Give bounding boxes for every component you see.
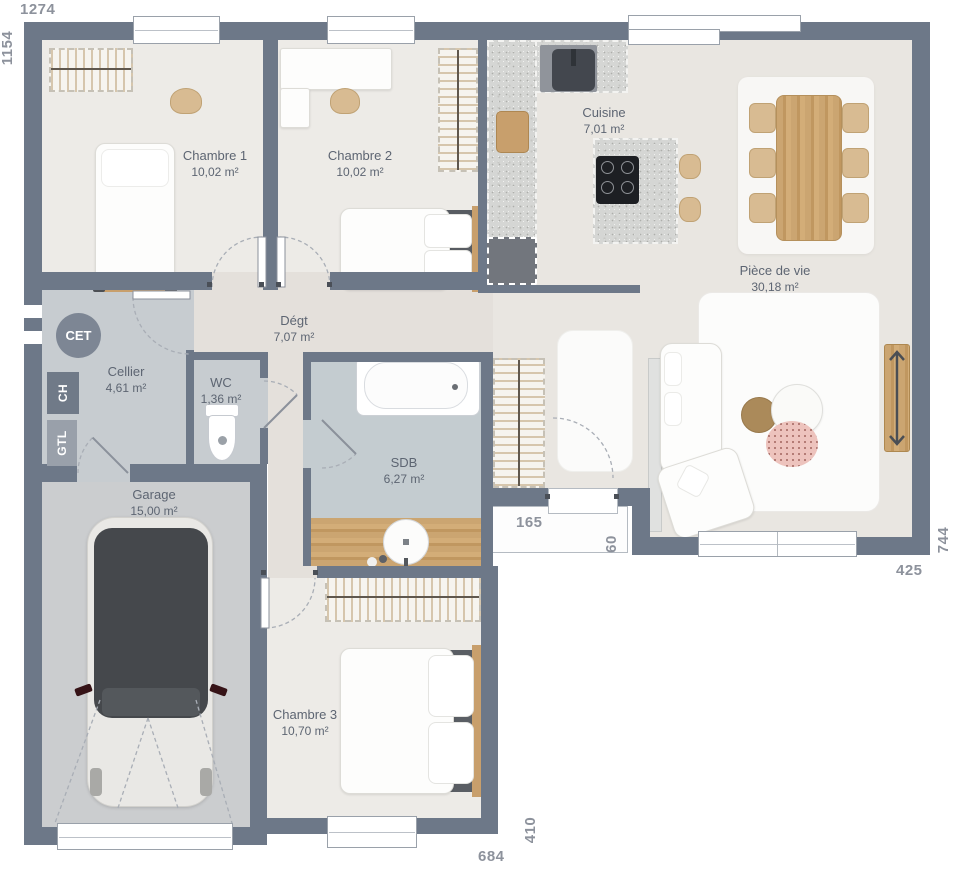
dimension-bottom: 684 [478, 848, 505, 865]
wall-right [912, 22, 930, 555]
sofa-cushion-1 [664, 352, 682, 386]
wall-bedrooms-south-east [330, 272, 481, 290]
room-area: 10,02 m² [150, 165, 280, 181]
label-garage: Garage 15,00 m² [89, 487, 219, 519]
bar-stool-1 [679, 154, 701, 179]
floor-plan: CET CH GTL [0, 0, 960, 872]
vent-slot-1 [24, 305, 42, 318]
garage-door [57, 823, 233, 850]
dining-chair-1 [749, 103, 776, 133]
label-degagement: Dégt 7,07 m² [229, 313, 359, 345]
closet-rod [518, 360, 520, 486]
pillow-1 [428, 655, 474, 717]
wardrobe-chambre1 [49, 48, 133, 92]
room-area: 15,00 m² [89, 504, 219, 520]
car [87, 517, 213, 807]
room-area: 10,70 m² [240, 724, 370, 740]
room-area: 7,01 m² [539, 122, 669, 138]
fridge [487, 237, 537, 285]
car-wheel-right [200, 768, 212, 796]
dining-chair-4 [842, 103, 869, 133]
label-wc: WC 1,36 m² [156, 375, 286, 407]
wall-wc-top [186, 352, 268, 360]
dining-table [776, 95, 842, 241]
label-chambre3: Chambre 3 10,70 m² [240, 707, 370, 739]
wall-sdb-top [303, 352, 493, 362]
car-windshield [102, 688, 200, 716]
dimension-porch-depth: 60 [604, 522, 620, 566]
room-area: 7,07 m² [229, 330, 359, 346]
wall-chambre2-kitchen [478, 40, 487, 293]
label-chambre1: Chambre 1 10,02 m² [150, 148, 280, 180]
wall-left [24, 22, 42, 845]
chair-chambre1 [170, 88, 202, 114]
label-cuisine: Cuisine 7,01 m² [539, 105, 669, 137]
room-name: SDB [339, 455, 469, 472]
desk-chambre2 [280, 48, 392, 90]
bay-window-divider [777, 532, 778, 556]
dining-chair-5 [842, 148, 869, 178]
dimension-top: 1274 [20, 1, 55, 18]
room-name: Chambre 2 [295, 148, 425, 165]
wall-front-jog [632, 488, 650, 555]
room-name: WC [156, 375, 286, 392]
sofa-cushion-2 [664, 392, 682, 426]
dining-chair-6 [842, 193, 869, 223]
vanity-drain [403, 539, 409, 545]
dining-chair-2 [749, 148, 776, 178]
wall-chambre3-top-west [250, 566, 267, 578]
pillow-1 [424, 214, 472, 248]
kitchen-faucet [571, 49, 576, 66]
wardrobe-rod [457, 50, 459, 170]
wall-garage-top-east [130, 464, 267, 482]
wall-wc-right-bottom [260, 428, 268, 464]
room-area: 10,02 m² [295, 165, 425, 181]
dimension-porch-width: 165 [516, 514, 543, 531]
window-chambre2 [327, 16, 415, 44]
room-name: Garage [89, 487, 219, 504]
window-kitchen-slider-pane2 [628, 29, 720, 45]
wall-chambre3-top-east [317, 566, 493, 578]
room-name: Cuisine [539, 105, 669, 122]
dimension-left: 1154 [0, 26, 16, 70]
wardrobe-rod [51, 68, 131, 70]
accessory-dot [379, 555, 387, 563]
pillow-2 [428, 722, 474, 784]
dimension-living-width: 425 [896, 562, 923, 579]
room-name: Chambre 3 [240, 707, 370, 724]
room-area: 6,27 m² [339, 472, 469, 488]
wall-sdb-left-bottom [303, 468, 311, 566]
entrance-step [548, 488, 618, 514]
bar-stool-2 [679, 197, 701, 222]
pouf-pink [766, 421, 818, 467]
wardrobe-rod [327, 596, 479, 598]
burner-2 [621, 161, 634, 174]
dimension-right: 744 [936, 518, 952, 562]
wall-sdb-left-top [303, 352, 311, 420]
burner-1 [601, 161, 614, 174]
label-sdb: SDB 6,27 m² [339, 455, 469, 487]
window-chambre3 [327, 816, 417, 848]
toilet-flush [218, 436, 227, 445]
label-piece-de-vie: Pièce de vie 30,18 m² [710, 263, 840, 295]
cutting-board [496, 111, 529, 153]
water-heater-cet: CET [56, 313, 101, 358]
dimension-chambre3-depth: 410 [523, 808, 539, 852]
burner-4 [621, 181, 634, 194]
room-name: Dégt [229, 313, 359, 330]
room-area: 1,36 m² [156, 392, 286, 408]
gtl-unit: GTL [47, 420, 77, 466]
room-name: Chambre 1 [150, 148, 280, 165]
wall-garage-right [250, 464, 267, 845]
car-wheel-left [90, 768, 102, 796]
dining-chair-3 [749, 193, 776, 223]
room-name: Pièce de vie [710, 263, 840, 280]
desk-chambre2-return [280, 88, 310, 128]
wall-sdb-right [481, 352, 493, 566]
room-area: 30,18 m² [710, 280, 840, 296]
wall-bedrooms-south-west [42, 272, 212, 290]
label-chambre2: Chambre 2 10,02 m² [295, 148, 425, 180]
wall-kitchen-south [478, 285, 640, 293]
entry-mat [557, 330, 633, 472]
wall-chambre3-right [481, 566, 498, 834]
vent-slot-2 [24, 331, 42, 344]
burner-3 [601, 181, 614, 194]
window-chambre1 [133, 16, 220, 44]
sideboard [884, 344, 910, 452]
wall-garage-top-west [24, 464, 77, 482]
chair-chambre2 [330, 88, 360, 114]
bathtub-drain [452, 384, 458, 390]
